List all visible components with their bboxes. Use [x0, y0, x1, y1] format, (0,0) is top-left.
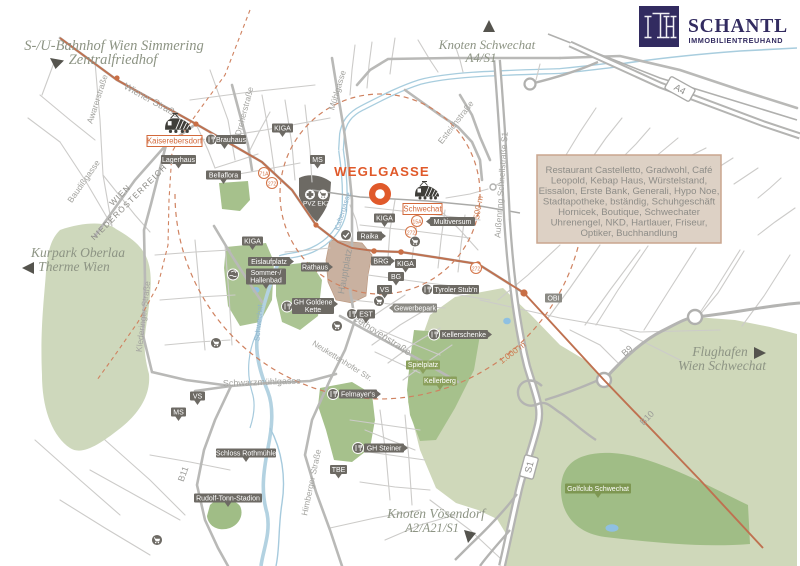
svg-text:Felmayer's: Felmayer's [341, 391, 376, 398]
svg-text:272: 272 [472, 267, 481, 273]
svg-text:A2/A21/S1: A2/A21/S1 [404, 521, 459, 535]
svg-text:GH Goldene: GH Goldene [294, 300, 333, 307]
svg-text:Schloss Rothmühle: Schloss Rothmühle [216, 451, 276, 458]
svg-text:KIGA: KIGA [244, 239, 261, 246]
svg-text:Bellaflora: Bellaflora [209, 173, 238, 180]
svg-text:Kellerschenke: Kellerschenke [442, 332, 486, 339]
svg-text:Uhrenengel, NKD, Hartlauer, Fr: Uhrenengel, NKD, Hartlauer, Friseur, [551, 218, 708, 229]
svg-text:VS: VS [193, 394, 203, 401]
svg-text:Raika: Raika [361, 234, 379, 241]
svg-text:Optiker, Buchhandlung: Optiker, Buchhandlung [580, 228, 677, 239]
svg-text:Kurpark Oberlaa: Kurpark Oberlaa [30, 245, 125, 260]
svg-text:Multiversum: Multiversum [434, 219, 472, 226]
svg-text:Sommer-/: Sommer-/ [251, 270, 282, 277]
svg-text:Kette: Kette [305, 307, 321, 314]
svg-text:VS: VS [380, 287, 390, 294]
svg-text:Lagerhaus: Lagerhaus [162, 157, 196, 164]
svg-text:SCHANTL: SCHANTL [688, 16, 788, 37]
svg-text:Brauhaus: Brauhaus [216, 137, 246, 144]
svg-text:Eissalon, Erste Bank, Generali: Eissalon, Erste Bank, Generali, Hypo Noe… [539, 186, 720, 197]
svg-text:Flughafen: Flughafen [691, 344, 748, 359]
svg-text:15A: 15A [413, 220, 423, 226]
svg-text:KIGA: KIGA [274, 126, 291, 133]
svg-text:TBE: TBE [332, 467, 346, 474]
svg-text:Gewerbepark: Gewerbepark [394, 306, 437, 313]
svg-text:Spielplatz: Spielplatz [408, 362, 439, 369]
svg-text:71A: 71A [260, 172, 270, 178]
svg-text:Schwechat: Schwechat [403, 205, 442, 214]
svg-text:272: 272 [407, 231, 416, 237]
svg-text:Eislaufplatz: Eislaufplatz [251, 259, 287, 266]
svg-text:WEGLGASSE: WEGLGASSE [334, 164, 430, 179]
svg-text:Hornicek, Boutique, Schwechate: Hornicek, Boutique, Schwechater [558, 207, 701, 218]
svg-text:KIGA: KIGA [397, 261, 414, 268]
svg-text:Stadtapotheke, bständig, Schu: Stadtapotheke, bständig, Schuhgeschäft [543, 197, 716, 208]
svg-text:OBI: OBI [547, 296, 559, 303]
svg-text:Zentralfriedhof: Zentralfriedhof [69, 52, 160, 68]
svg-text:Wien Schwechat: Wien Schwechat [678, 358, 767, 373]
svg-text:BG: BG [391, 274, 401, 281]
svg-text:MS: MS [312, 157, 323, 164]
svg-text:GH Steiner: GH Steiner [367, 445, 402, 452]
svg-text:PVZ EKZ: PVZ EKZ [303, 201, 330, 208]
svg-text:Hallenbad: Hallenbad [250, 278, 282, 285]
svg-text:Knoten Vösendorf: Knoten Vösendorf [386, 506, 487, 521]
svg-text:MS: MS [173, 410, 184, 417]
svg-text:Rudolf-Tonn-Stadion: Rudolf-Tonn-Stadion [196, 496, 260, 503]
svg-text:Therme Wien: Therme Wien [38, 259, 110, 274]
svg-text:Kaiserebersdorf: Kaiserebersdorf [147, 137, 203, 146]
svg-text:BRG: BRG [373, 259, 388, 266]
svg-text:EST: EST [359, 311, 373, 318]
svg-text:Restaurant Castelletto, Gradwo: Restaurant Castelletto, Gradwohl, Café [546, 165, 713, 176]
svg-text:Tyroler Stub'n: Tyroler Stub'n [435, 287, 478, 294]
svg-text:Rathaus: Rathaus [302, 265, 329, 272]
svg-text:272: 272 [268, 182, 277, 188]
svg-text:Golfclub Schwechat: Golfclub Schwechat [567, 486, 629, 493]
svg-text:Kellerberg: Kellerberg [424, 378, 456, 385]
svg-text:Leopold, Kebap Haus, Würstelst: Leopold, Kebap Haus, Würstelstand, [551, 176, 707, 187]
svg-text:A4/S1: A4/S1 [464, 50, 496, 65]
svg-text:KIGA: KIGA [376, 216, 393, 223]
svg-text:IMMOBILIENTREUHAND: IMMOBILIENTREUHAND [689, 36, 784, 45]
